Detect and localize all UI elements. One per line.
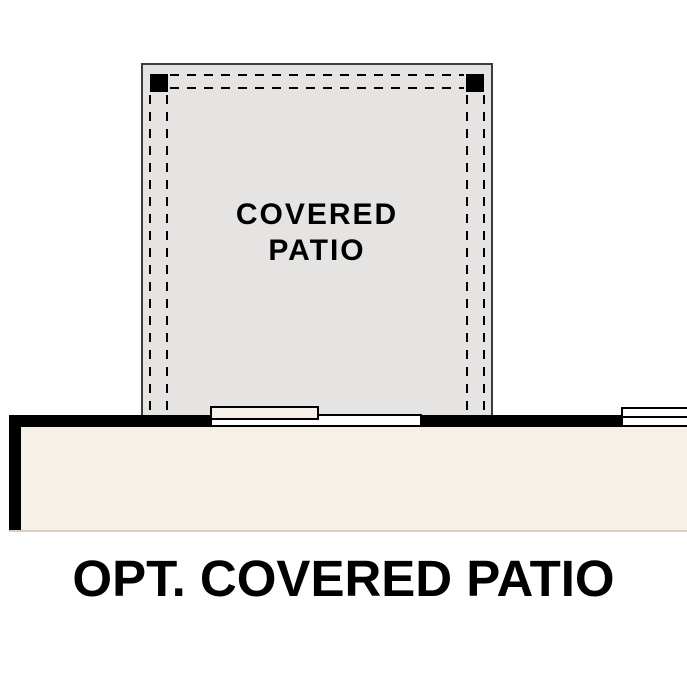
patio-post-left <box>150 74 168 92</box>
window-right <box>621 407 687 427</box>
patio-label: COVERED PATIO <box>141 197 493 269</box>
house-wall-top-right-segment <box>420 415 622 427</box>
plan-caption: OPT. COVERED PATIO <box>0 549 687 608</box>
patio-label-text: COVERED PATIO <box>187 197 447 269</box>
patio-post-right <box>466 74 484 92</box>
sliding-door-panel <box>210 406 319 420</box>
house-wall-top-left-segment <box>9 415 212 427</box>
roof-dashed-line-top-inner <box>170 87 464 89</box>
house-wall-left-vertical <box>9 415 21 530</box>
floorplan-canvas: COVERED PATIO OPT. COVERED PATIO <box>0 0 687 687</box>
house-interior-floor <box>21 427 687 530</box>
interior-edge-shadow <box>9 530 687 532</box>
roof-dashed-line-top-outer <box>170 74 464 76</box>
window-mullion-line <box>623 416 687 418</box>
